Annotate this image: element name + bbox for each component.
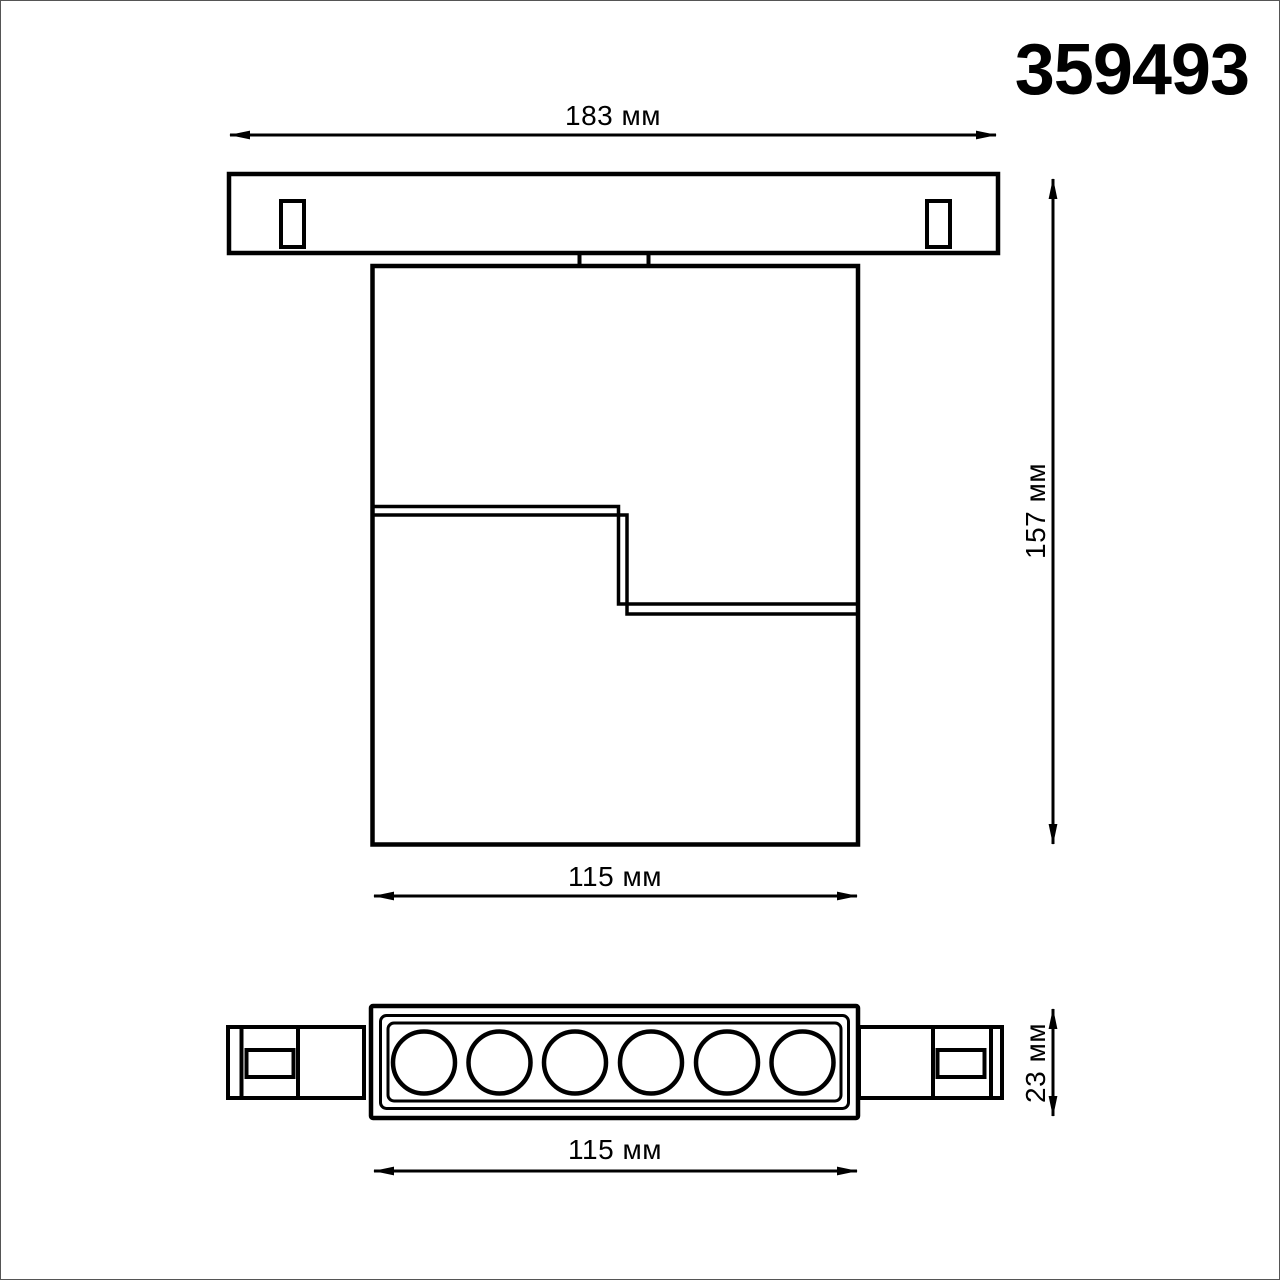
dim-label-track-width: 183 мм: [565, 100, 661, 131]
dim-label-head-width: 115 мм: [568, 1134, 662, 1165]
lamp-body: [373, 266, 859, 845]
track-end-right: [859, 1027, 1002, 1098]
tilt-seam-line-2: [374, 515, 856, 614]
led-lens: [620, 1032, 682, 1094]
track-end-right-slot: [938, 1050, 985, 1077]
dim-label-head-depth: 23 мм: [1020, 1023, 1051, 1103]
led-lens: [544, 1032, 606, 1094]
track-slot-right: [927, 201, 950, 247]
tilt-seam-line-1: [374, 507, 856, 605]
technical-drawing-page: 359493: [0, 0, 1280, 1280]
head-mid-bezel: [381, 1016, 849, 1109]
front-view: [229, 174, 998, 845]
led-lens: [393, 1032, 455, 1094]
dim-label-overall-height: 157 мм: [1020, 463, 1051, 559]
bottom-view: [228, 1006, 1002, 1118]
product-code: 359493: [1015, 30, 1249, 110]
led-lens: [772, 1032, 834, 1094]
track-bar: [229, 174, 998, 253]
led-lens: [696, 1032, 758, 1094]
led-lens: [469, 1032, 531, 1094]
dimension-drawing-canvas: 359493: [1, 1, 1279, 1279]
track-end-left-slot: [247, 1050, 294, 1077]
dim-label-body-width: 115 мм: [568, 861, 662, 892]
track-slot-left: [281, 201, 304, 247]
led-lens-row: [393, 1032, 834, 1094]
